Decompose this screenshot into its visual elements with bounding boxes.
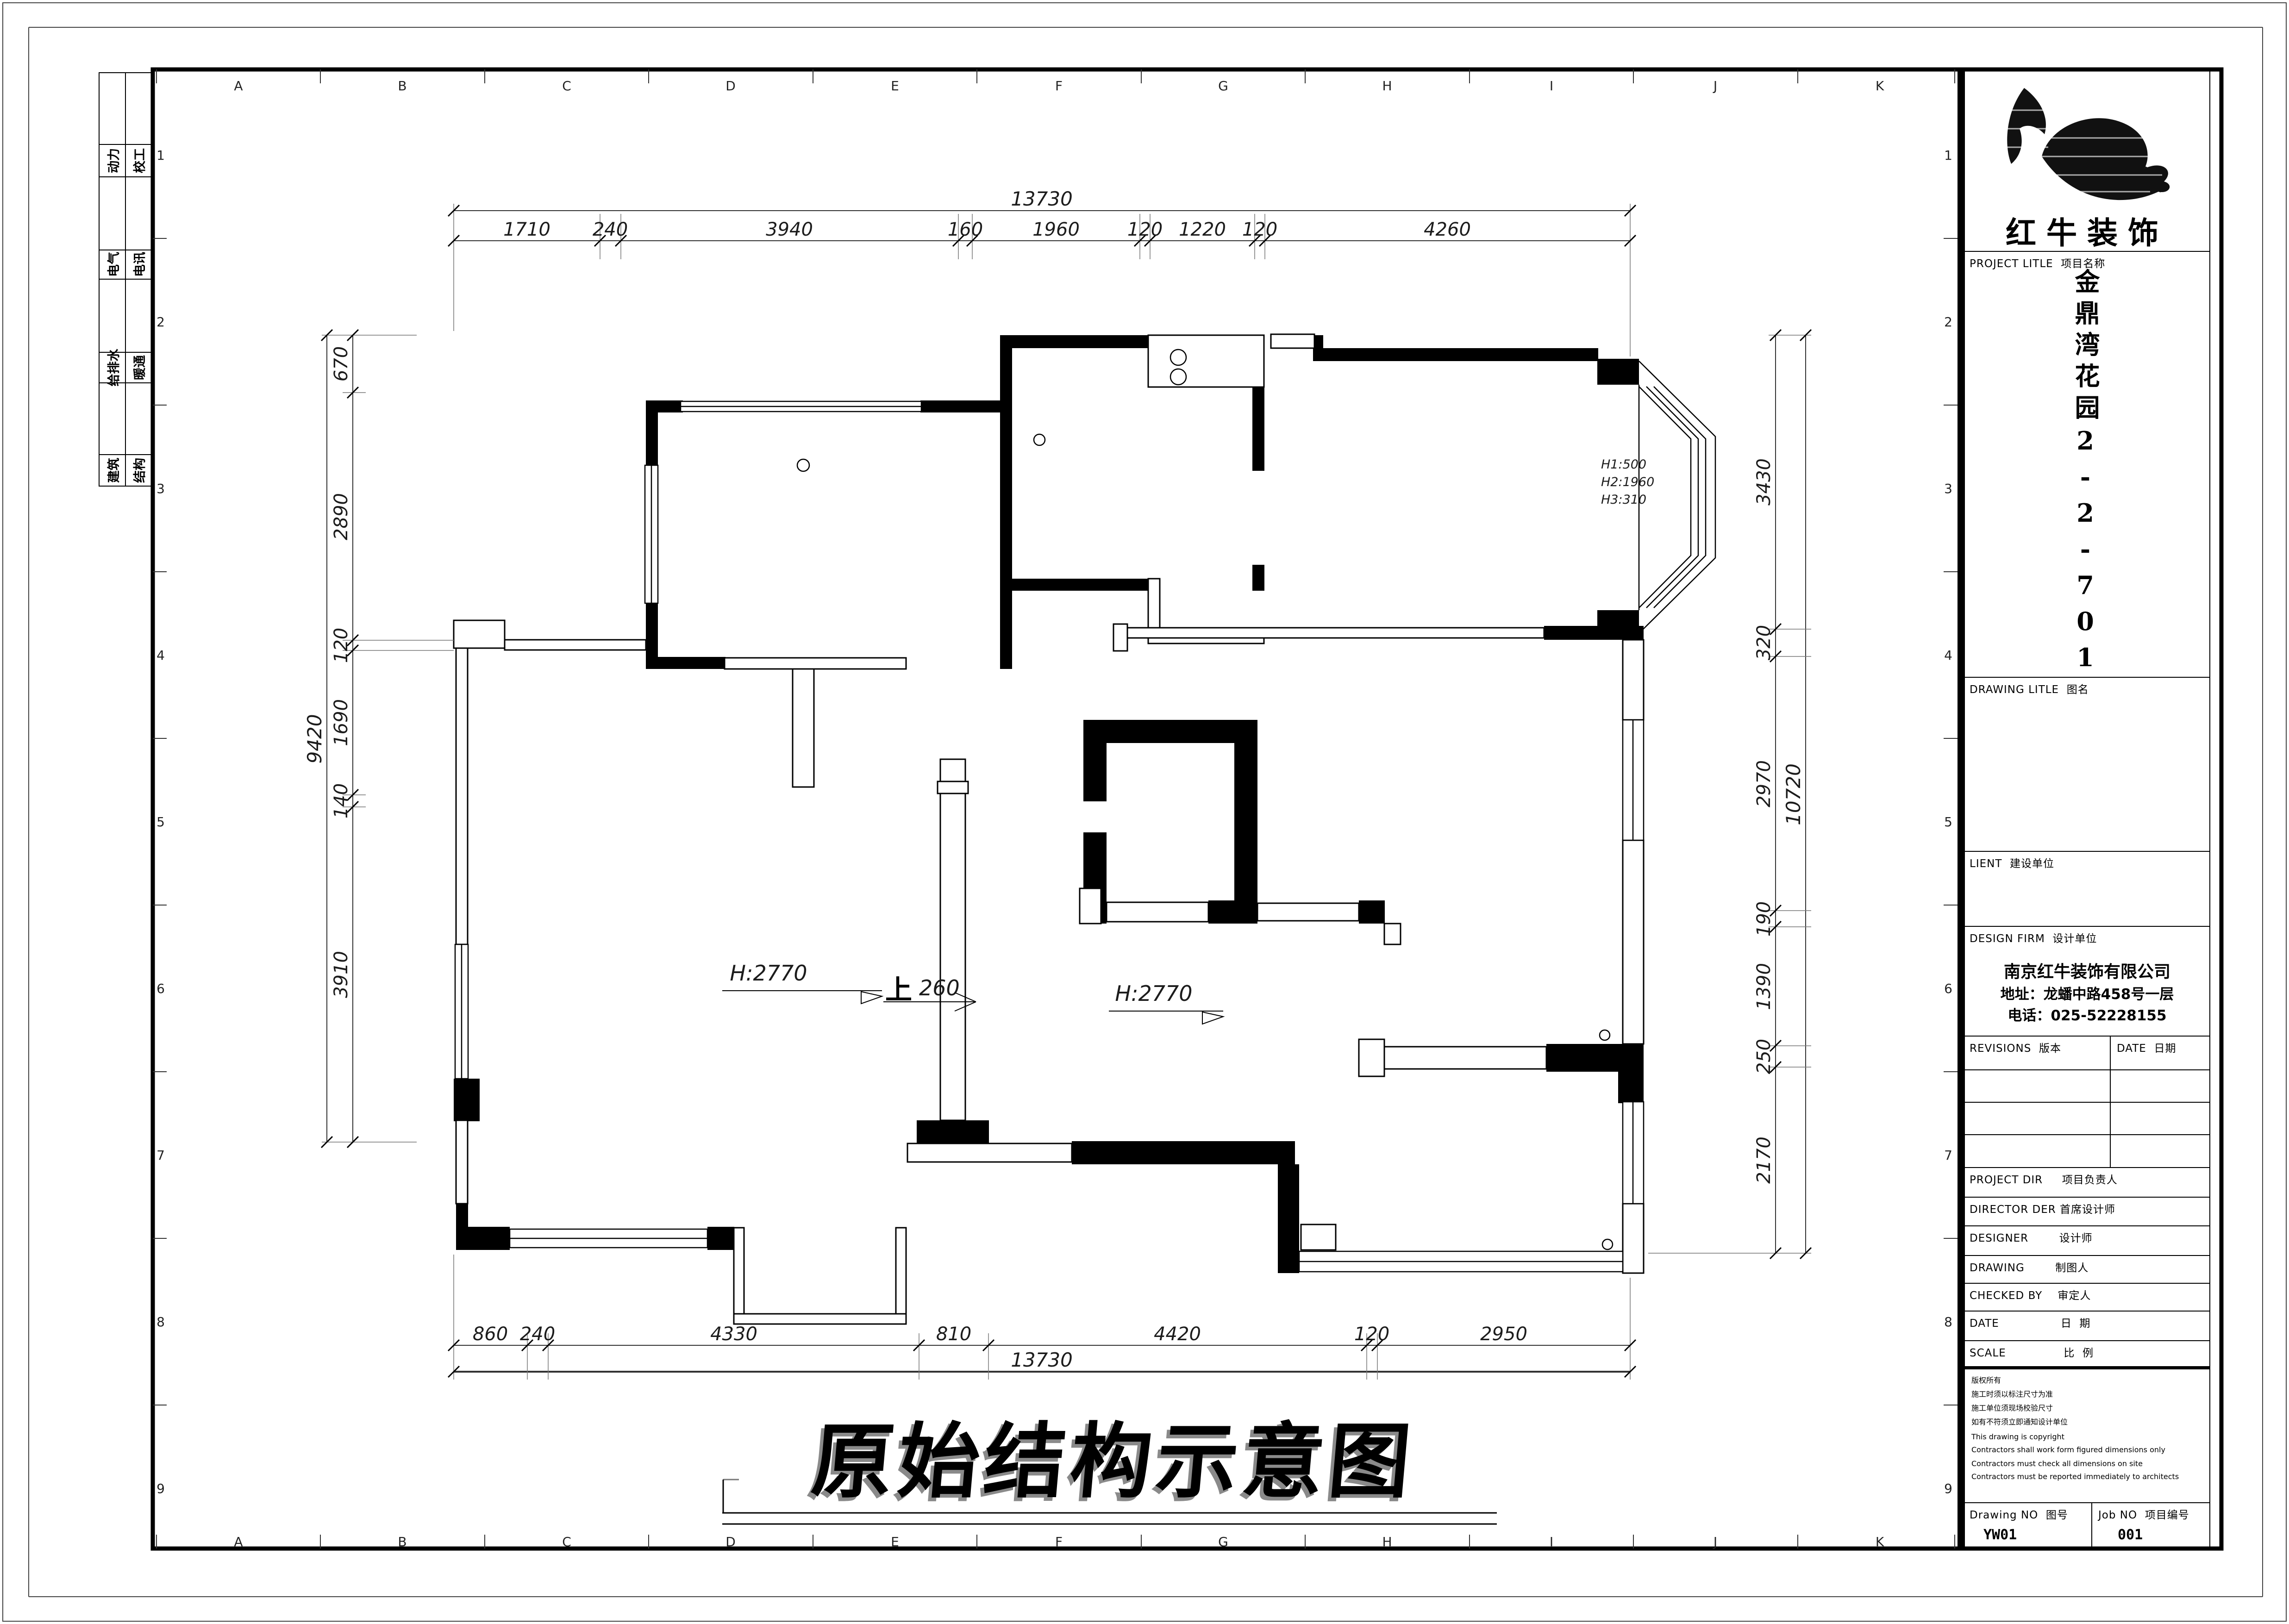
tb-line (1965, 1225, 2209, 1226)
grid-letter: A (234, 78, 243, 94)
floor-plan: H:2770 H:2770 上 260 H1:500 H2:1960 H3:31… (454, 334, 1715, 1324)
dim: 3940 (766, 219, 813, 240)
title-block-divider-bar (1958, 69, 1965, 1549)
project-dir-label: PROJECT DIR 项目负责人 (1970, 1171, 2118, 1187)
tb-line (1965, 1069, 2209, 1070)
dim: 4420 (1154, 1324, 1201, 1345)
drawing-title: 原始结构示意图 原始结构示意图 (722, 1414, 1497, 1524)
scale-label: SCALE 比 例 (1970, 1344, 2094, 1360)
firm-phone: 电话：025-52228155 (1965, 1004, 2209, 1024)
grid-letter: F (1055, 1534, 1063, 1549)
brand-name: 红牛装饰 (1965, 208, 2209, 253)
grid-number: 2 (156, 314, 165, 330)
tb-line (1965, 251, 2209, 252)
tb-line (1965, 1102, 2209, 1103)
bay-note-line: H3:310 (1601, 493, 1646, 507)
discipline-label: 动力 (107, 148, 121, 173)
grid-letter: C (562, 78, 571, 94)
discipline-label: 暖通 (133, 355, 147, 380)
dim: 140 (331, 783, 352, 818)
discipline-label: 结构 (133, 458, 147, 483)
stair-value: 260 (919, 975, 960, 1000)
grid-letter: H (1382, 78, 1392, 94)
grid-numbers-left: 1 2 3 4 5 6 7 8 9 (156, 148, 165, 1496)
copyright-line: 施工单位须现场校验尺寸 (1971, 1402, 2205, 1415)
grid-letter: B (398, 1534, 407, 1549)
tb-line (1965, 926, 2209, 927)
dim-top-overall: 13730 (1011, 187, 1073, 210)
bay-note-line: H1:500 (1601, 457, 1646, 472)
grid-numbers-right: 1 2 3 4 5 6 7 8 9 (1944, 148, 1952, 1496)
grid-number: 7 (1944, 1148, 1952, 1163)
bay-window (1639, 361, 1715, 633)
dim: 2890 (331, 493, 352, 540)
dim: 1960 (1032, 219, 1080, 240)
dimension-ticks (321, 205, 1811, 1377)
dim: 1390 (1753, 963, 1775, 1010)
sheet-svg: 动力 校工 电气 电讯 给排水 暖通 建筑 结构 A B C D E F G H… (0, 0, 2289, 1624)
grid-number: 3 (156, 481, 165, 496)
tb-line (1965, 1167, 2209, 1168)
grid-letter: I (1550, 1534, 1553, 1549)
drawing-no-value: YW01 (1983, 1527, 2017, 1543)
copyright-line: Contractors shall work form figured dime… (1971, 1443, 2205, 1456)
grid-number: 8 (156, 1314, 165, 1330)
grid-letter: D (725, 78, 736, 94)
tb-line (1965, 677, 2209, 678)
dimension-text-right: 3430 320 2970 190 1390 250 2170 10720 (1753, 458, 1805, 1184)
stair-up-label: 上 (885, 974, 912, 1006)
dim: 240 (593, 219, 628, 240)
grid-letter: J (1713, 78, 1717, 94)
dim: 120 (1242, 219, 1277, 240)
tb-line (1965, 1311, 2209, 1312)
design-firm-label: DESIGN FIRM 设计单位 (1970, 930, 2097, 945)
title-block: 红牛装饰 PROJECT LITLE 项目名称 金鼎湾花园2-2-701 DRA… (1965, 69, 2209, 1549)
dimension-text-left: 9420 670 2890 120 1690 140 3910 (303, 346, 352, 998)
dim: 2170 (1753, 1137, 1775, 1184)
grid-number: 5 (1944, 814, 1952, 830)
bay-note-line: H2:1960 (1601, 475, 1654, 489)
project-name: 金鼎湾花园2-2-701 (2063, 269, 2108, 679)
tb-line (1965, 1134, 2209, 1135)
grid-number: 9 (156, 1481, 165, 1496)
copyright-line: Contractors must check all dimensions on… (1971, 1457, 2205, 1470)
discipline-label: 电讯 (133, 252, 147, 277)
dim: 120 (1127, 219, 1163, 240)
dimension-text-bottom: 860 240 4330 810 4420 120 2950 13730 (473, 1324, 1527, 1371)
dim: 670 (331, 346, 352, 381)
copyright-line: 版权所有 (1971, 1374, 2205, 1387)
copyright-line: 施工时须以标注尺寸为准 (1971, 1388, 2205, 1401)
grid-letter: A (234, 1534, 243, 1549)
project-title-label: PROJECT LITLE 项目名称 (1970, 255, 2105, 270)
designer-label: DESIGNER 设计师 (1970, 1229, 2093, 1245)
grid-letter: K (1876, 78, 1884, 94)
tb-line (1965, 1197, 2209, 1198)
dim: 320 (1753, 625, 1775, 660)
dim: 160 (948, 219, 983, 240)
grid-letter: E (891, 1534, 899, 1549)
discipline-table (99, 73, 152, 486)
dim: 120 (1354, 1324, 1389, 1345)
tb-vline (2110, 1036, 2111, 1167)
drawing-no-label: Drawing NO 图号 (1970, 1506, 2068, 1522)
dim: 4260 (1424, 219, 1471, 240)
copyright-line: Contractors must be reported immediately… (1971, 1470, 2205, 1483)
checked-by-label: CHECKED BY 审定人 (1970, 1287, 2091, 1302)
tb-line (1965, 1283, 2209, 1284)
room-height-label: H:2770 (730, 961, 807, 986)
grid-letter: J (1713, 1534, 1717, 1549)
dim: 1690 (331, 699, 352, 746)
title-block-right-line (2209, 69, 2210, 1549)
revisions-label: REVISIONS 版本 (1970, 1039, 2061, 1055)
grid-letters-top: A B C D E F G H I J K (234, 78, 1884, 94)
grid-letter: I (1550, 78, 1553, 94)
grid-number: 6 (1944, 981, 1952, 996)
job-no-value: 001 (2118, 1527, 2143, 1543)
grid-letter: G (1218, 78, 1228, 94)
drawing-title-text: 原始结构示意图 (808, 1414, 1419, 1509)
copyright-line: This drawing is copyright (1971, 1430, 2205, 1443)
tb-vline (2091, 1502, 2092, 1549)
grid-letter: E (891, 78, 899, 94)
room-height-label: H:2770 (1115, 981, 1192, 1006)
firm-address: 地址：龙蟠中路458号一层 (1965, 982, 2209, 1003)
dim: 810 (936, 1324, 971, 1345)
dim-right-overall: 10720 (1782, 763, 1805, 825)
grid-ticks (153, 69, 1958, 1549)
date2-label: DATE 日 期 (1970, 1314, 2090, 1330)
grid-number: 4 (1944, 648, 1952, 663)
dim: 190 (1753, 901, 1775, 937)
copyright-line: 如有不符须立即通知设计单位 (1971, 1416, 2205, 1429)
dim: 4330 (710, 1324, 757, 1345)
tb-line (1965, 1502, 2209, 1503)
grid-number: 8 (1944, 1314, 1952, 1330)
grid-letter: C (562, 1534, 571, 1549)
dim: 250 (1753, 1039, 1775, 1074)
dim: 3910 (331, 951, 352, 998)
grid-number: 5 (156, 814, 165, 830)
dimension-lines (327, 211, 1806, 1372)
tb-line (1965, 851, 2209, 852)
grid-number: 2 (1944, 314, 1952, 330)
dim-left-overall: 9420 (303, 714, 326, 764)
dimension-text-top: 13730 1710 240 3940 160 1960 120 1220 12… (503, 187, 1471, 240)
tb-line (1965, 1036, 2209, 1037)
grid-number: 4 (156, 648, 165, 663)
plan-walls-black (454, 335, 1644, 1273)
job-no-label: Job NO 项目编号 (2098, 1506, 2189, 1522)
dim: 3430 (1753, 458, 1775, 506)
grid-number: 1 (156, 148, 165, 163)
dim: 120 (331, 628, 352, 663)
grid-number: 6 (156, 981, 165, 996)
grid-letter: B (398, 78, 407, 94)
grid-letter: G (1218, 1534, 1228, 1549)
grid-number: 9 (1944, 1481, 1952, 1496)
tb-line (1965, 1255, 2209, 1256)
plan-circles (797, 350, 1613, 1249)
discipline-labels: 动力 校工 电气 电讯 给排水 暖通 建筑 结构 (106, 148, 147, 483)
plan-walls-thin (454, 334, 1644, 1324)
plan-windows (455, 401, 1644, 1272)
grid-letter: D (725, 1534, 736, 1549)
dim: 240 (520, 1324, 555, 1345)
discipline-label: 电气 (107, 252, 121, 277)
grid-number: 1 (1944, 148, 1952, 163)
drawing-sheet: 动力 校工 电气 电讯 给排水 暖通 建筑 结构 A B C D E F G H… (0, 0, 2289, 1624)
grid-number: 7 (156, 1148, 165, 1163)
dim: 2950 (1480, 1324, 1527, 1345)
discipline-label: 建筑 (106, 458, 121, 483)
grid-letter: H (1382, 1534, 1392, 1549)
dim: 1710 (503, 219, 550, 240)
tb-thick-line (1965, 1366, 2209, 1369)
drawing-title-label: DRAWING LITLE 图名 (1970, 681, 2089, 696)
drawing-by-label: DRAWING 制图人 (1970, 1259, 2089, 1274)
director-label: DIRECTOR DER 首席设计师 (1970, 1200, 2115, 1216)
dim: 860 (473, 1324, 508, 1345)
dim: 1220 (1179, 219, 1226, 240)
discipline-label: 校工 (132, 148, 147, 173)
tb-line (1965, 1340, 2209, 1341)
discipline-label: 给排水 (107, 349, 121, 387)
client-label: LIENT 建设单位 (1970, 855, 2054, 870)
dim-bottom-overall: 13730 (1011, 1349, 1073, 1371)
grid-number: 3 (1944, 481, 1952, 496)
dimension-extensions (322, 204, 1811, 1380)
bull-logo-icon (1997, 82, 2210, 212)
grid-letter: K (1876, 1534, 1884, 1549)
date-label: DATE 日期 (2117, 1039, 2176, 1055)
dim: 2970 (1753, 760, 1775, 807)
firm-name: 南京红牛装饰有限公司 (1965, 958, 2209, 982)
grid-letter: F (1055, 78, 1063, 94)
